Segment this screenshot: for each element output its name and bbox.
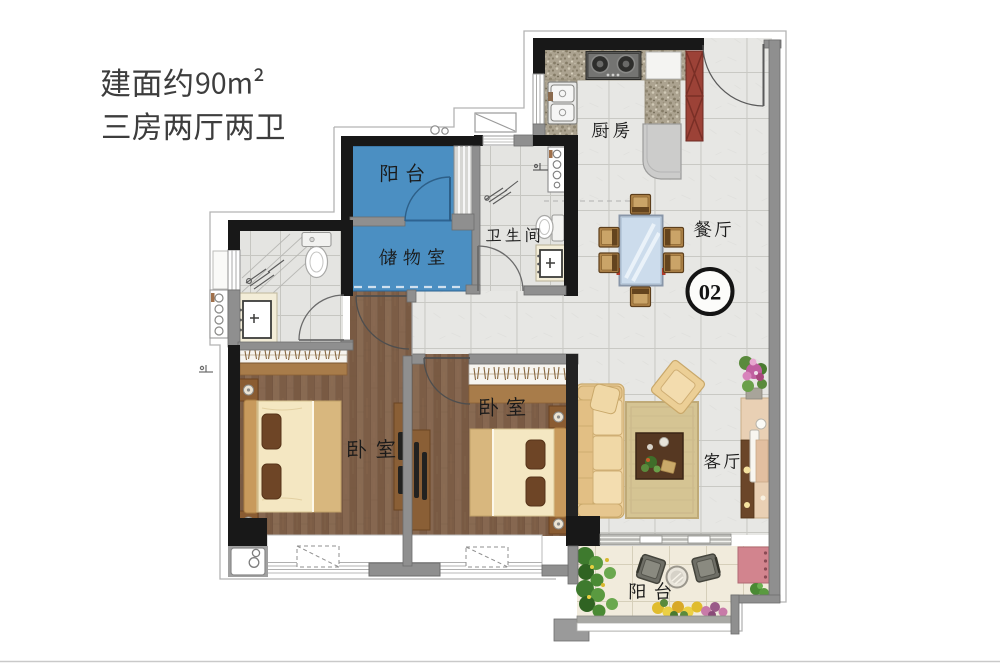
svg-text:02: 02: [699, 280, 722, 305]
